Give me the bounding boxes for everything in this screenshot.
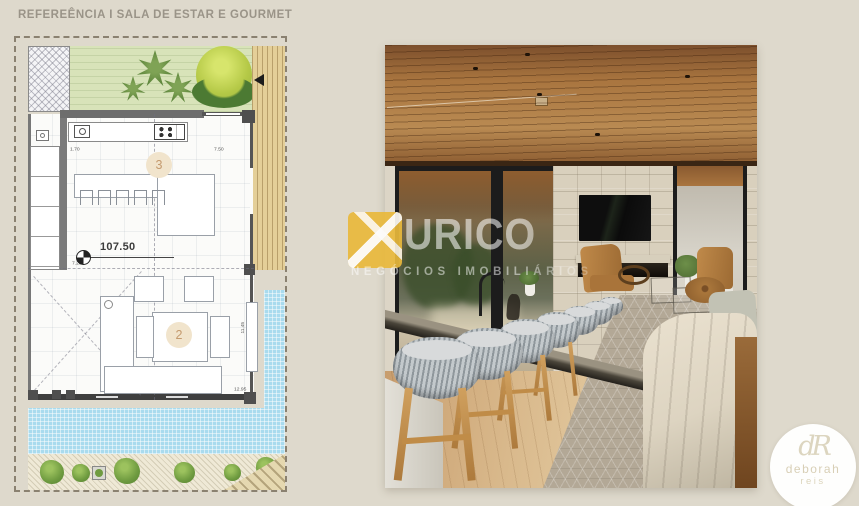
window-line <box>206 113 240 115</box>
room-label-kitchen: 3 <box>146 152 172 178</box>
sink-icon <box>74 125 90 138</box>
window-line <box>96 396 118 398</box>
tree-icon <box>120 76 146 102</box>
armchair-plan <box>184 276 214 302</box>
indoor-plant <box>675 255 699 277</box>
garden-top <box>70 46 252 112</box>
level-line <box>86 257 174 258</box>
downlight-icon <box>595 133 600 136</box>
downlight-icon <box>537 93 542 96</box>
stove-icon <box>154 124 185 140</box>
window-frame <box>395 166 555 171</box>
lamp-icon <box>104 300 113 309</box>
plan-barstool <box>80 190 93 205</box>
decor-sculpture <box>506 294 521 321</box>
tree-icon <box>162 72 194 104</box>
badge-surname: reis <box>800 476 825 487</box>
plan-barstool <box>116 190 129 205</box>
downlight-icon <box>525 53 530 56</box>
bush-icon <box>224 464 241 481</box>
cabinet-shelving <box>30 146 60 270</box>
section-marker-icon <box>254 74 264 86</box>
column <box>244 264 255 275</box>
sofa-plan <box>104 366 222 394</box>
page-title: REFEREÊNCIA I SALA DE ESTAR E GOURMET <box>18 9 292 21</box>
bush-icon <box>174 462 195 483</box>
bush-icon <box>40 460 64 484</box>
column <box>242 110 255 123</box>
wood-ceiling <box>385 45 757 163</box>
room-label-living: 2 <box>166 322 192 348</box>
wall <box>28 394 256 400</box>
eurico-logo-icon <box>348 212 402 268</box>
column <box>52 390 61 399</box>
garden-bottom <box>28 454 285 490</box>
seat-plan <box>136 316 154 358</box>
level-marker-icon <box>76 250 91 265</box>
column <box>28 390 38 400</box>
watermark-tagline: NEGÓCIOS IMOBILIÁRIOS <box>351 266 593 278</box>
dimension-label: 12.95 <box>234 386 246 392</box>
pool-right <box>264 290 285 410</box>
pool-bottom <box>28 408 285 454</box>
badge-name: deborah <box>786 462 841 476</box>
ceiling-vent <box>535 97 548 106</box>
plan-barstool <box>98 190 111 205</box>
watermark-brand: URICO <box>404 210 536 260</box>
plan-barstool <box>152 190 165 205</box>
level-label: 107.50 <box>100 241 135 253</box>
bush-icon <box>72 464 90 482</box>
dimension-label: 11.45 <box>240 322 245 334</box>
dimension-label: 1.70 <box>70 146 80 152</box>
window-line <box>166 396 188 398</box>
window-bench-plan <box>246 302 258 372</box>
wall <box>60 110 204 118</box>
downlight-icon <box>685 75 690 78</box>
seat-plan <box>210 316 230 358</box>
outdoor-soffit <box>673 166 747 186</box>
axis-line <box>28 268 254 269</box>
window-line <box>250 168 253 214</box>
planter-icon <box>92 466 106 480</box>
sofa-wood-frame <box>735 337 757 488</box>
bush-icon <box>114 458 140 484</box>
paving-hatch <box>28 46 70 112</box>
downlight-icon <box>473 67 478 70</box>
plan-barstool <box>134 190 147 205</box>
armchair-plan <box>134 276 164 302</box>
watermark: URICO NEGÓCIOS IMOBILIÁRIOS <box>348 208 678 288</box>
dimension-label: 7.50 <box>214 146 224 152</box>
floor-plan: 3 1.70 7.50 7.20 107.50 2 11.45 12.95 <box>14 36 287 492</box>
kitchen-island <box>157 174 215 236</box>
column <box>66 390 75 399</box>
wall-fixture <box>36 130 49 141</box>
light-reflection <box>387 94 577 108</box>
tree-fringe <box>192 76 256 108</box>
agency-badge: dR deborah reis <box>770 424 856 506</box>
column <box>244 392 256 404</box>
bar-stool <box>393 337 481 399</box>
badge-monogram: dR <box>798 433 828 460</box>
wall <box>60 118 67 270</box>
slide: REFEREÊNCIA I SALA DE ESTAR E GOURMET <box>0 0 859 506</box>
